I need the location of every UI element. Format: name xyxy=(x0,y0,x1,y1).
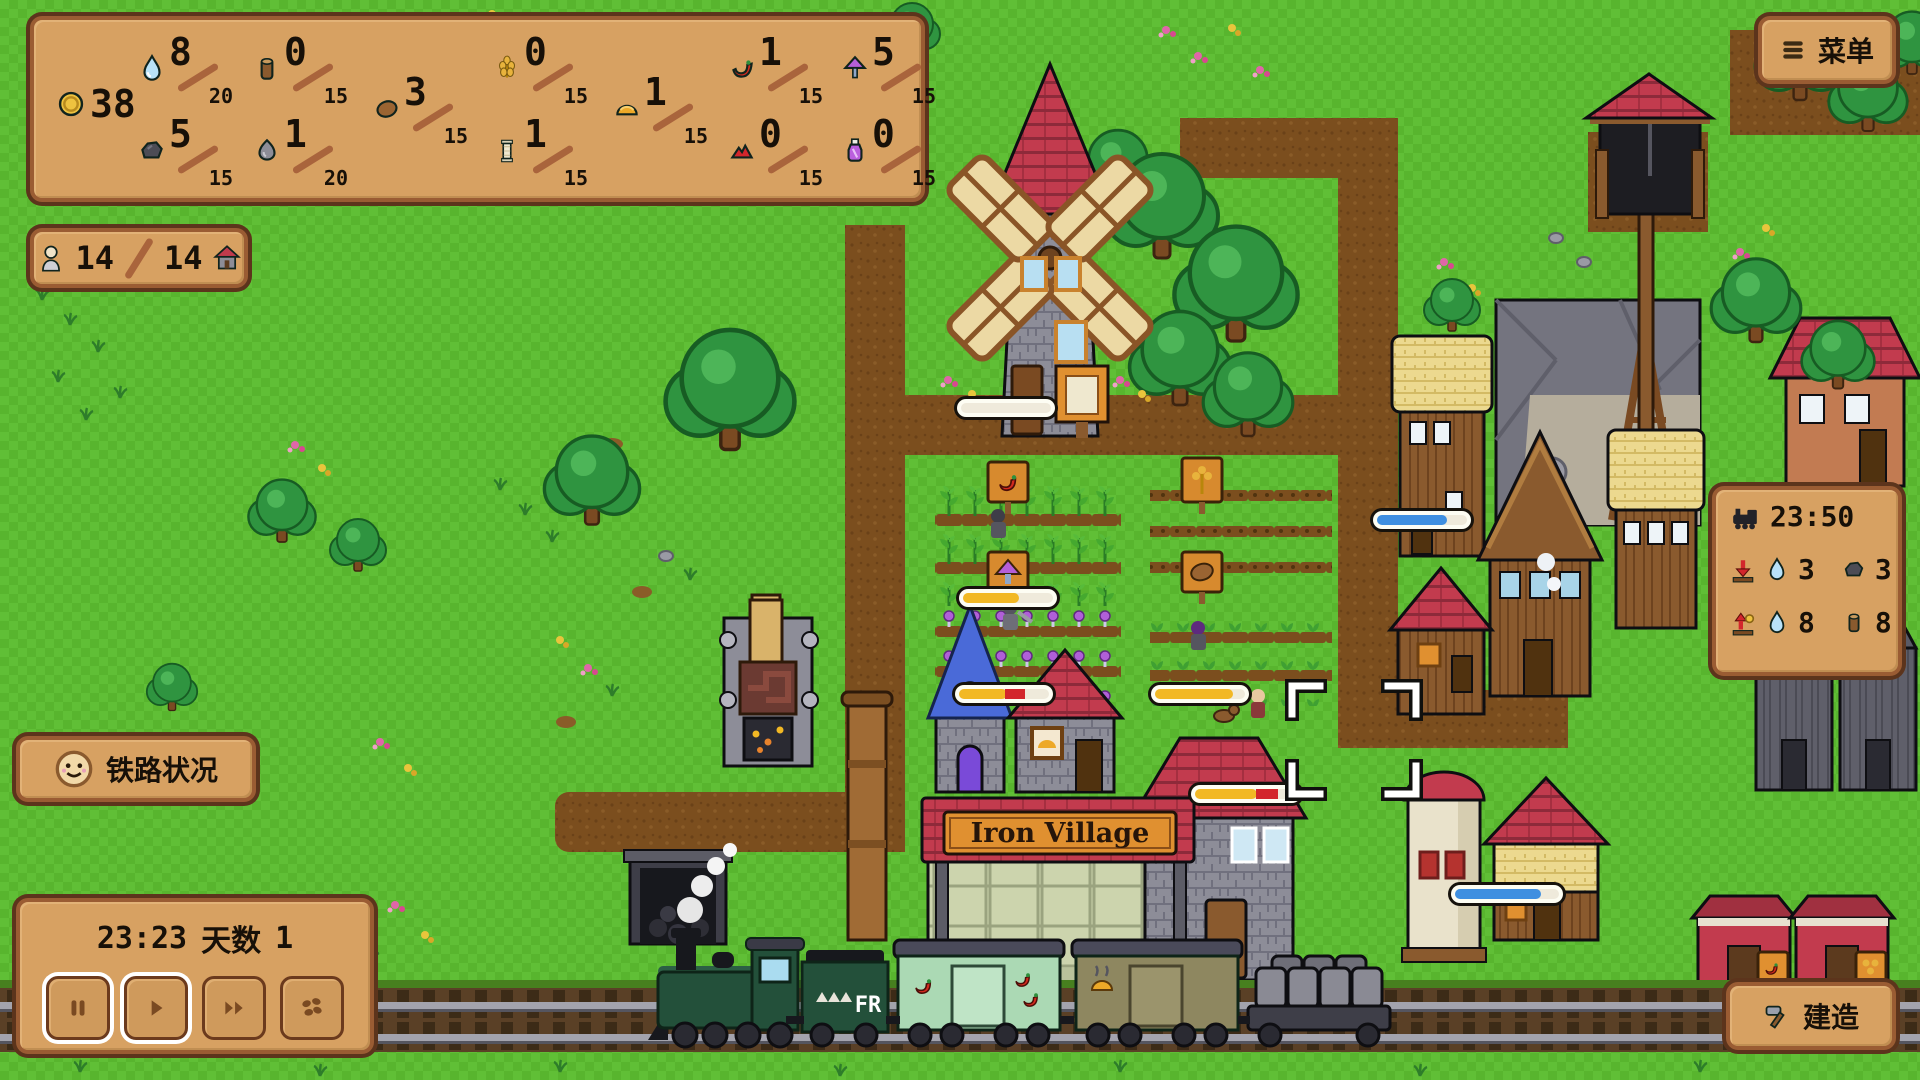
tender-car[interactable]: FR xyxy=(802,950,888,1046)
unload-coal-value: 3 xyxy=(1875,553,1892,586)
resource-max: 15 xyxy=(209,166,233,190)
resource-max: 15 xyxy=(799,166,823,190)
resource-max: 15 xyxy=(444,124,468,148)
population-slash xyxy=(124,237,154,280)
resource-log: 015 xyxy=(254,38,348,108)
resource-value: 1 xyxy=(284,112,307,156)
resource-panel: 38 820 515 015 120 315 xyxy=(30,16,925,202)
resource-max: 15 xyxy=(912,166,936,190)
unload-row: 3 3 xyxy=(1730,553,1898,586)
resource-max: 15 xyxy=(799,84,823,108)
clock-time: 23:23 xyxy=(97,921,187,956)
tender-logo: FR xyxy=(855,993,882,1018)
resource-max: 15 xyxy=(684,124,708,148)
resource-max: 15 xyxy=(564,84,588,108)
resource-value: 0 xyxy=(759,112,782,156)
log-icon xyxy=(254,54,280,84)
menu-button[interactable]: 菜单 xyxy=(1758,16,1896,84)
unload-arrow-icon xyxy=(1730,557,1756,583)
resource-max: 15 xyxy=(912,84,936,108)
menu-button-label: 菜单 xyxy=(1818,30,1874,70)
resource-value: 0 xyxy=(524,30,547,74)
play-icon xyxy=(143,995,169,1021)
resource-max: 15 xyxy=(564,166,588,190)
resource-max: 20 xyxy=(209,84,233,108)
footprints-icon xyxy=(298,995,326,1021)
resource-max: 20 xyxy=(324,166,348,190)
water-drop-icon xyxy=(1766,557,1788,583)
pause-icon xyxy=(65,995,91,1021)
ruby-icon xyxy=(729,136,755,166)
boxcar-bread[interactable] xyxy=(1072,940,1242,1046)
load-water-value: 8 xyxy=(1798,606,1815,639)
resource-potion: 015 xyxy=(842,120,936,190)
train-arrival-row: 23:50 xyxy=(1730,500,1898,533)
resource-wheat: 015 xyxy=(494,38,588,108)
load-arrow-icon xyxy=(1730,610,1756,636)
potion-icon xyxy=(842,136,868,166)
resource-value: 1 xyxy=(524,112,547,156)
spool-icon xyxy=(494,136,520,166)
build-button[interactable]: 建造 xyxy=(1726,982,1896,1050)
population-current: 14 xyxy=(75,239,114,277)
resource-coal: 515 xyxy=(139,120,233,190)
train-arrival-time: 23:50 xyxy=(1770,500,1854,533)
resource-value: 3 xyxy=(404,70,427,114)
resource-value: 5 xyxy=(872,30,895,74)
resource-value: 0 xyxy=(284,30,307,74)
resource-value: 8 xyxy=(169,30,192,74)
clock-readout: 23:23 天数 1 xyxy=(20,916,370,960)
station-sign: Iron Village xyxy=(971,818,1150,849)
wheat-icon xyxy=(494,54,520,84)
house-icon xyxy=(213,243,241,273)
game-viewport: Iron Village xyxy=(0,0,1920,1080)
resource-value: 1 xyxy=(759,30,782,74)
resource-max: 15 xyxy=(324,84,348,108)
coal-icon xyxy=(1843,557,1865,583)
population-max: 14 xyxy=(164,239,203,277)
resource-potato: 315 xyxy=(374,78,468,148)
water-drop-icon xyxy=(139,54,165,84)
stone-icon xyxy=(254,136,280,166)
villager xyxy=(1251,689,1265,718)
potato-icon xyxy=(374,94,400,124)
smelter[interactable] xyxy=(720,595,818,766)
day-label: 天数 xyxy=(201,916,261,960)
tracks-button[interactable] xyxy=(280,976,344,1040)
coal-icon xyxy=(139,136,165,166)
train-icon xyxy=(1730,504,1760,530)
resource-bread: 115 xyxy=(614,78,708,148)
build-button-label: 建造 xyxy=(1803,996,1859,1036)
water-drop-icon xyxy=(1766,610,1788,636)
day-value: 1 xyxy=(275,921,293,956)
resource-mushroom: 515 xyxy=(842,38,936,108)
railway-status-label: 铁路状况 xyxy=(106,749,218,789)
coin-value: 38 xyxy=(90,82,136,126)
hamburger-icon xyxy=(1780,37,1806,63)
smiley-face-icon xyxy=(54,749,94,789)
resource-stone: 120 xyxy=(254,120,348,190)
resource-value: 5 xyxy=(169,112,192,156)
fast-forward-icon xyxy=(220,995,248,1021)
railway-status-button[interactable]: 铁路状况 xyxy=(16,736,256,802)
resource-chili: 115 xyxy=(729,38,823,108)
resource-value: 1 xyxy=(644,70,667,114)
boxcar-chili[interactable] xyxy=(894,940,1064,1046)
clock-panel: 23:23 天数 1 xyxy=(16,898,374,1054)
unload-water-value: 3 xyxy=(1798,553,1815,586)
fast-forward-button[interactable] xyxy=(202,976,266,1040)
hammer-icon xyxy=(1763,1002,1791,1030)
log-icon xyxy=(1843,610,1865,636)
villager-icon xyxy=(37,243,65,273)
coin-counter: 38 xyxy=(56,82,136,126)
resource-spool: 115 xyxy=(494,120,588,190)
load-log-value: 8 xyxy=(1875,606,1892,639)
bread-icon xyxy=(614,94,640,124)
pause-button[interactable] xyxy=(46,976,110,1040)
chili-icon xyxy=(729,54,755,84)
play-button[interactable] xyxy=(124,976,188,1040)
population-badge: 14 14 xyxy=(30,228,248,288)
train-schedule-panel: 23:50 3 3 8 8 xyxy=(1712,486,1902,676)
loading-crane xyxy=(842,692,892,940)
mushroom-icon xyxy=(842,54,868,84)
resource-ruby: 015 xyxy=(729,120,823,190)
coin-icon xyxy=(56,87,86,121)
resource-water: 820 xyxy=(139,38,233,108)
resource-value: 0 xyxy=(872,112,895,156)
load-row: 8 8 xyxy=(1730,606,1898,639)
